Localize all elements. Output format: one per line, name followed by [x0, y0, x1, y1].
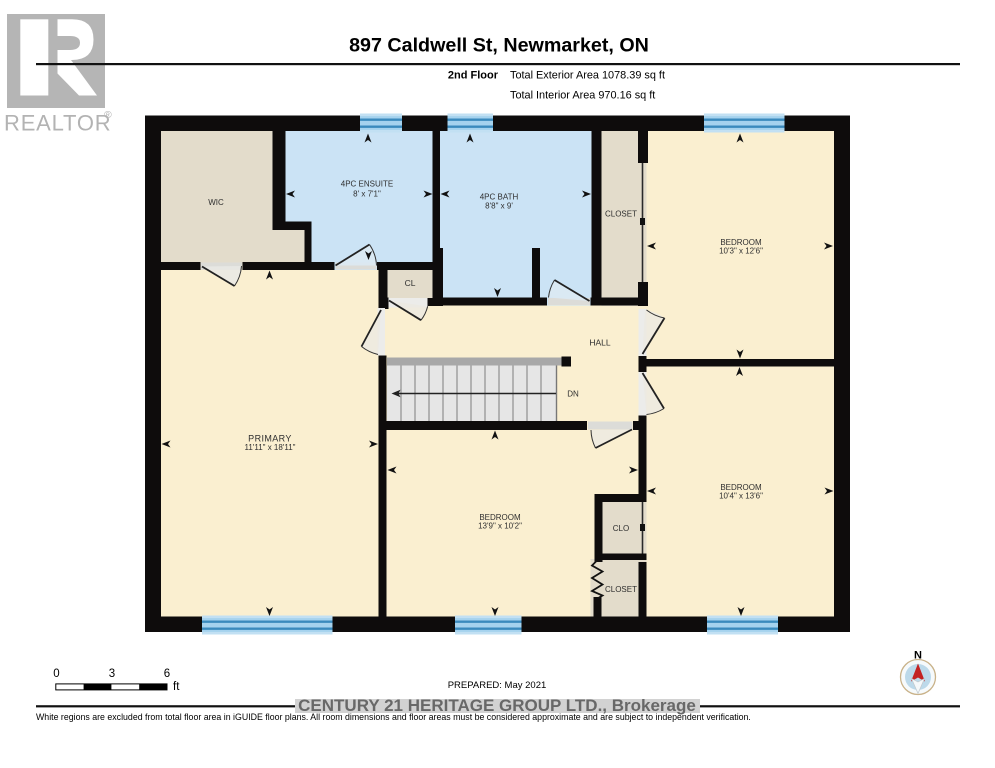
svg-text:CLOSET: CLOSET: [605, 585, 637, 594]
svg-text:4PC BATH: 4PC BATH: [480, 193, 519, 202]
svg-text:PRIMARY: PRIMARY: [248, 434, 292, 444]
svg-text:Total Exterior Area 1078.39 sq: Total Exterior Area 1078.39 sq ft: [510, 70, 665, 82]
svg-text:White regions are excluded fro: White regions are excluded from total fl…: [36, 712, 751, 722]
svg-text:3: 3: [109, 668, 115, 680]
svg-text:6: 6: [164, 668, 170, 680]
svg-text:HALL: HALL: [589, 338, 611, 348]
svg-text:0: 0: [53, 668, 59, 680]
svg-text:CLO: CLO: [613, 524, 629, 533]
svg-text:4PC ENSUITE: 4PC ENSUITE: [341, 180, 393, 189]
svg-text:10'3" x 12'6": 10'3" x 12'6": [719, 247, 763, 256]
svg-text:8'8" x 9': 8'8" x 9': [485, 202, 513, 211]
svg-text:13'9" x 10'2": 13'9" x 10'2": [478, 522, 522, 531]
svg-text:10'4" x 13'6": 10'4" x 13'6": [719, 492, 763, 501]
svg-text:CL: CL: [405, 278, 416, 288]
svg-text:DN: DN: [567, 390, 579, 399]
svg-text:8' x 7'1": 8' x 7'1": [353, 190, 381, 199]
svg-text:Total Interior Area 970.16 sq: Total Interior Area 970.16 sq ft: [510, 90, 655, 102]
svg-text:PREPARED: May 2021: PREPARED: May 2021: [448, 680, 547, 691]
svg-text:CLOSET: CLOSET: [605, 210, 637, 219]
svg-text:ft: ft: [173, 681, 180, 693]
svg-text:2nd Floor: 2nd Floor: [448, 70, 499, 82]
svg-text:WIC: WIC: [208, 198, 224, 207]
svg-text:®: ®: [104, 109, 112, 121]
svg-text:REALTOR: REALTOR: [4, 111, 111, 136]
svg-text:897 Caldwell St, Newmarket, ON: 897 Caldwell St, Newmarket, ON: [349, 35, 649, 57]
svg-text:11'11" x 18'11": 11'11" x 18'11": [245, 443, 296, 452]
